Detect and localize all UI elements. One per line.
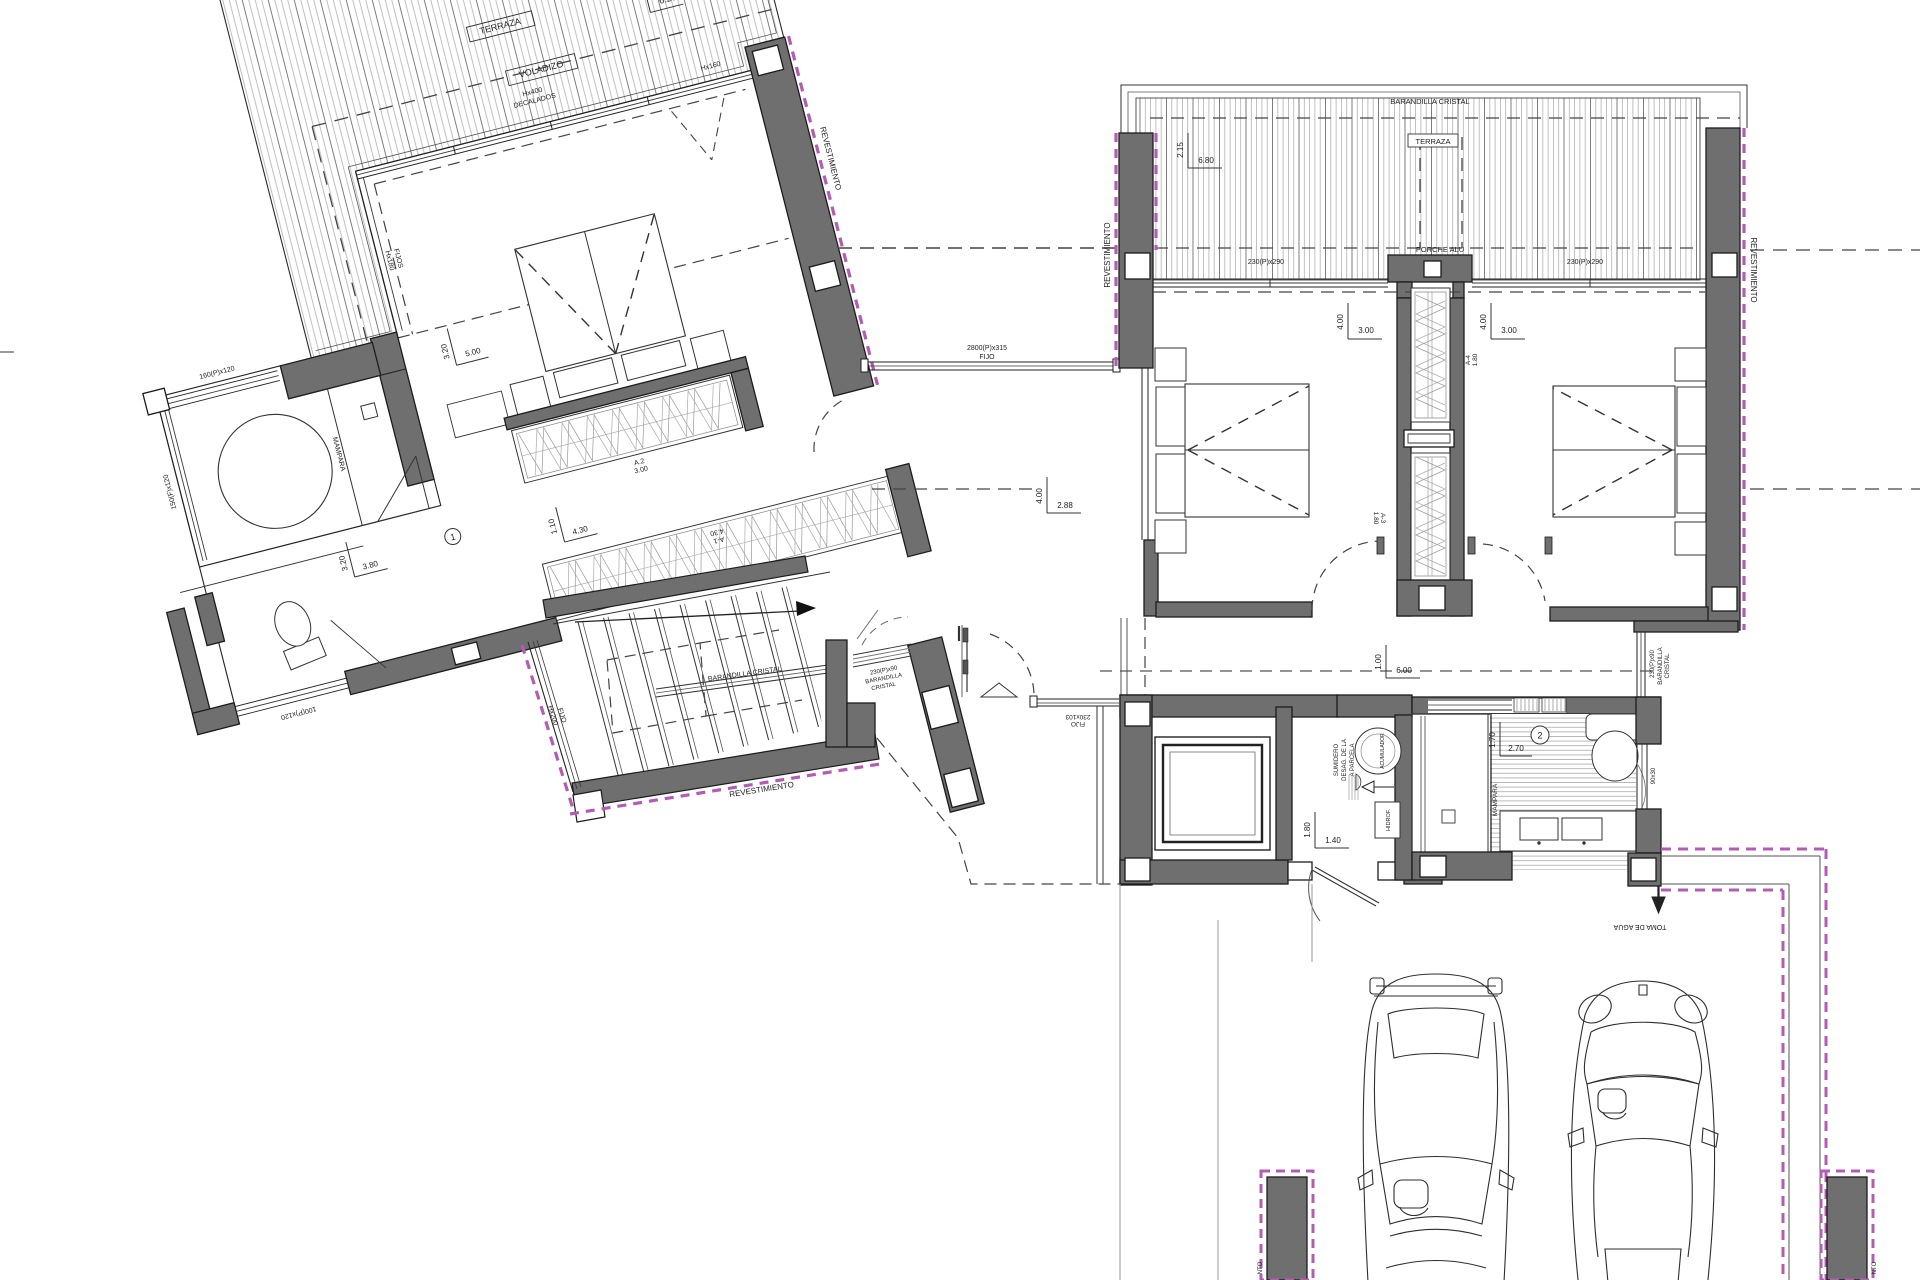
svg-text:REVESTIMIENTO: REVESTIMIENTO	[1749, 237, 1758, 302]
svg-text:PORCHE ALU: PORCHE ALU	[1416, 245, 1464, 254]
svg-text:FIJO: FIJO	[1071, 720, 1085, 727]
svg-text:FIJO: FIJO	[979, 354, 995, 361]
svg-text:4.00: 4.00	[1479, 314, 1488, 330]
svg-text:DESAG. DE LA: DESAG. DE LA	[1342, 739, 1348, 781]
svg-text:NTO: NTO	[1872, 1261, 1878, 1274]
svg-text:SUMIDERO: SUMIDERO	[1334, 744, 1340, 777]
svg-text:2.15: 2.15	[1176, 142, 1185, 158]
svg-text:BARANDILLA: BARANDILLA	[1658, 647, 1664, 684]
svg-text:3.00: 3.00	[1501, 326, 1517, 335]
svg-text:1.80: 1.80	[1372, 512, 1379, 525]
svg-text:CRISTAL: CRISTAL	[1665, 653, 1671, 679]
svg-text:TERRAZA: TERRAZA	[1415, 137, 1450, 146]
svg-text:90x30: 90x30	[1651, 767, 1657, 784]
svg-text:230(P)x290: 230(P)x290	[1248, 259, 1284, 266]
svg-text:2: 2	[1537, 731, 1542, 741]
svg-text:TOMA DE AGUA: TOMA DE AGUA	[1613, 923, 1666, 930]
svg-text:2.88: 2.88	[1057, 501, 1073, 510]
svg-text:1.70: 1.70	[1488, 732, 1497, 748]
svg-text:A-4: A-4	[1465, 355, 1472, 366]
svg-text:REVESTIMIENTO: REVESTIMIENTO	[1103, 222, 1112, 287]
svg-text:2.70: 2.70	[1508, 744, 1524, 753]
svg-text:MAMPARA: MAMPARA	[1492, 783, 1499, 816]
svg-text:A-3: A-3	[1379, 513, 1386, 524]
svg-text:4.00: 4.00	[1035, 488, 1044, 504]
svg-text:1.40: 1.40	[1325, 836, 1341, 845]
svg-text:6.80: 6.80	[1198, 156, 1214, 165]
svg-text:BARANDILLA CRISTAL: BARANDILLA CRISTAL	[1390, 97, 1469, 106]
svg-text:230(P)x90: 230(P)x90	[1650, 649, 1656, 677]
svg-text:1.80: 1.80	[1303, 822, 1312, 838]
svg-text:NTO: NTO	[1258, 1261, 1264, 1274]
svg-text:230(P)x290: 230(P)x290	[1567, 259, 1603, 266]
svg-text:HIDROF.: HIDROF.	[1386, 809, 1392, 831]
svg-text:6.00: 6.00	[1396, 666, 1412, 675]
svg-text:2800(P)x315: 2800(P)x315	[967, 345, 1007, 352]
svg-text:1.80: 1.80	[1472, 353, 1479, 366]
svg-text:4.00: 4.00	[1336, 314, 1345, 330]
svg-text:A PARCELA: A PARCELA	[1350, 744, 1356, 777]
svg-text:ACUMULADOR: ACUMULADOR	[1380, 733, 1386, 769]
svg-text:1.00: 1.00	[1374, 654, 1383, 670]
svg-text:3.00: 3.00	[1358, 326, 1374, 335]
svg-text:230x103: 230x103	[1065, 713, 1090, 720]
